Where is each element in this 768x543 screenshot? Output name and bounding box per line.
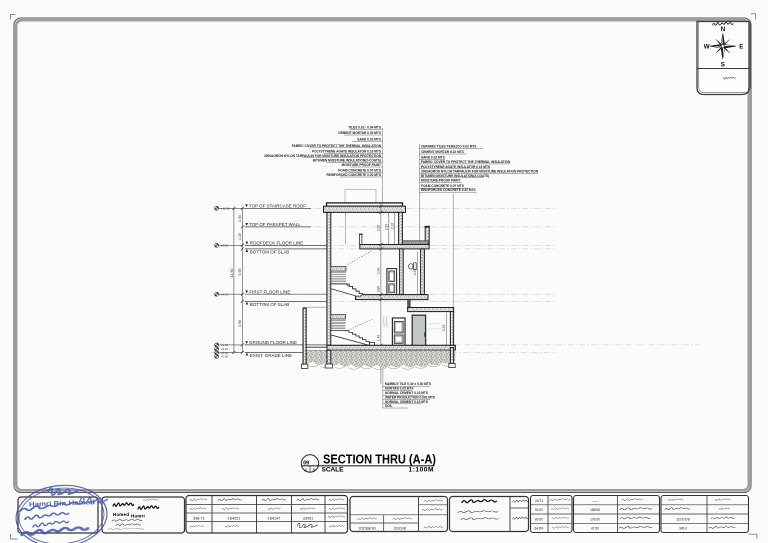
svg-text:BOTTOM OF SLAB: BOTTOM OF SLAB: [250, 250, 289, 255]
svg-text:MOISTURE-PROOF PAINT: MOISTURE-PROOF PAINT: [421, 178, 460, 182]
svg-text:NORMAL CEMENT 0.10 MTS: NORMAL CEMENT 0.10 MTS: [385, 391, 428, 395]
svg-text:SOIL: SOIL: [385, 404, 392, 408]
svg-text:FIRST FLOOR LINE: FIRST FLOOR LINE: [249, 289, 290, 294]
svg-text:11.90: 11.90: [230, 269, 234, 278]
svg-text:2.10: 2.10: [390, 223, 394, 230]
svg-text:47.50: 47.50: [591, 527, 599, 531]
svg-text:TOP OF PARAPET WALL: TOP OF PARAPET WALL: [249, 222, 301, 227]
svg-text:398-71: 398-71: [193, 517, 205, 521]
svg-text:2.30: 2.30: [377, 268, 381, 275]
svg-text:80.00: 80.00: [535, 517, 543, 521]
svg-text:BOTTOM OF SLAB: BOTTOM OF SLAB: [250, 302, 289, 307]
svg-text:——: ——: [592, 499, 599, 503]
svg-text:184147: 184147: [268, 517, 281, 521]
svg-text:POLYSTYRENE AGATE INSULATOR 0.: POLYSTYRENE AGATE INSULATOR 0.10 MTS: [312, 149, 381, 153]
svg-text:3.20: 3.20: [377, 225, 381, 232]
svg-text:2023/8: 2023/8: [394, 526, 406, 531]
svg-text:1/2/1/378: 1/2/1/378: [676, 517, 690, 521]
svg-text:1.50: 1.50: [238, 215, 242, 222]
svg-text:MOISTURE-PROOF PAINT: MOISTURE-PROOF PAINT: [342, 163, 381, 167]
svg-text:CEMENT MORTAR 0.02 MTS: CEMENT MORTAR 0.02 MTS: [338, 131, 381, 135]
svg-text:A: A: [304, 467, 307, 472]
svg-text:MARBLE TILE 0.30 x 0.30 MTS: MARBLE TILE 0.30 x 0.30 MTS: [385, 382, 431, 386]
svg-text:FABRIC COVER TO PROTECT THE TH: FABRIC COVER TO PROTECT THE THERMAL INSU…: [421, 160, 511, 164]
svg-text:REINFORCED CONCRETE 0.20 MTS: REINFORCED CONCRETE 0.20 MTS: [421, 188, 476, 192]
svg-text:09: 09: [303, 460, 309, 466]
svg-text:33991: 33991: [303, 517, 314, 521]
svg-text:+4.70: +4.70: [221, 292, 229, 296]
svg-text:E: E: [739, 44, 743, 51]
svg-text:SECTION THRU (A-A): SECTION THRU (A-A): [323, 453, 436, 467]
svg-text:188/98: 188/98: [590, 508, 600, 512]
svg-text:64.8%: 64.8%: [534, 527, 543, 531]
svg-text:24/71: 24/71: [535, 499, 543, 503]
svg-text:BITUMEN MOISTURE INSULATION(2-: BITUMEN MOISTURE INSULATION(2-COATS): [313, 158, 381, 162]
svg-text:SAND 0.02 MTS: SAND 0.02 MTS: [421, 156, 445, 160]
svg-text:345.0: 345.0: [679, 527, 687, 531]
svg-text:GROUND FLOOR LINE: GROUND FLOOR LINE: [249, 340, 297, 345]
svg-text:1.20: 1.20: [238, 233, 242, 240]
svg-text:184251: 184251: [228, 517, 241, 521]
svg-text:ROOFDECK FLOOR LINE: ROOFDECK FLOOR LINE: [250, 241, 304, 246]
svg-text:3.90: 3.90: [238, 269, 242, 276]
svg-text:Hamri: Hamri: [131, 514, 145, 519]
svg-text:MORTAR 0.05 MTS: MORTAR 0.05 MTS: [385, 387, 413, 391]
svg-text:2023/8/30: 2023/8/30: [358, 526, 376, 531]
svg-text:EXIST. GRADE LINE: EXIST. GRADE LINE: [250, 353, 292, 358]
svg-text:SAND 0.02 MTS: SAND 0.02 MTS: [357, 137, 381, 141]
svg-text:SCALE: SCALE: [322, 467, 345, 474]
svg-text:CERAMIC TILES TERAZZO 0.02 MT: CERAMIC TILES TERAZZO 0.02 MTS: [421, 144, 476, 148]
svg-text:2000AGRON NYLON TARPAULIN FOR: 2000AGRON NYLON TARPAULIN FOR MOISTURE I…: [264, 154, 382, 158]
svg-text:2000AGRON NYLON TARPAULIN FOR: 2000AGRON NYLON TARPAULIN FOR MOISTURE I…: [421, 169, 539, 173]
svg-text:S: S: [721, 61, 726, 68]
svg-text:2.20: 2.20: [385, 224, 389, 231]
svg-text:3.30: 3.30: [442, 325, 446, 332]
svg-text:1.40: 1.40: [377, 335, 381, 342]
svg-text:Hamed: Hamed: [113, 512, 129, 517]
svg-text:FOAM CONCRETE 0.07 MTS: FOAM CONCRETE 0.07 MTS: [338, 168, 381, 172]
svg-text:0.80: 0.80: [377, 286, 381, 293]
svg-text:CEMENT MORTAR 0.02 MTS: CEMENT MORTAR 0.02 MTS: [421, 150, 464, 154]
svg-text:+8.60: +8.60: [221, 244, 229, 248]
svg-text:FABRIC COVER TO PROTECT THE TH: FABRIC COVER TO PROTECT THE THERMAL INSU…: [292, 144, 382, 148]
svg-text:TOP OF STAIRCASE ROOF: TOP OF STAIRCASE ROOF: [249, 203, 307, 208]
svg-text:178.00: 178.00: [590, 517, 600, 521]
svg-text:REINFORCED CONCRETE 0.20 MTS: REINFORCED CONCRETE 0.20 MTS: [326, 173, 381, 177]
svg-text:+11.90: +11.90: [221, 207, 230, 211]
svg-text:1:100M: 1:100M: [409, 467, 435, 474]
svg-text:POLYSTYRENE AGATE INSULATOR 0.: POLYSTYRENE AGATE INSULATOR 0.10 MTS: [421, 165, 490, 169]
svg-text:50.00: 50.00: [535, 508, 543, 512]
svg-text:W: W: [704, 44, 710, 51]
svg-text:+0.00: +0.00: [221, 355, 229, 359]
svg-text:N: N: [721, 26, 726, 33]
svg-text:TILES 0.02 - 0.04 MTS: TILES 0.02 - 0.04 MTS: [348, 126, 381, 130]
svg-text:3.90: 3.90: [238, 320, 242, 327]
svg-text:BITUMEN MOISTURE INSULATION(2-: BITUMEN MOISTURE INSULATION(2-COATS): [421, 174, 489, 178]
